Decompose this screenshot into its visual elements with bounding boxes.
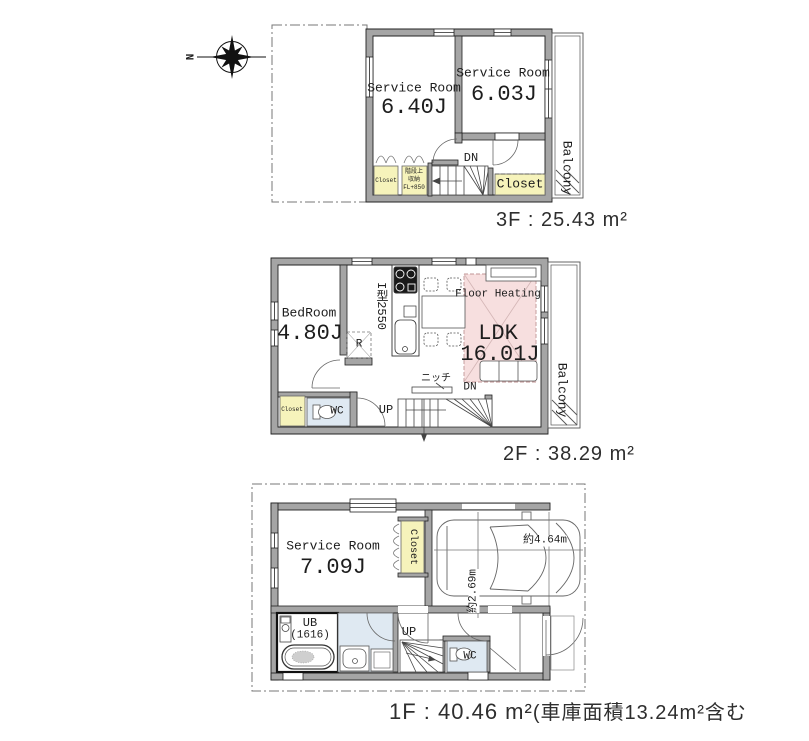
f1-area-main: 1F : 40.46 m²	[389, 699, 533, 724]
f3-service-room-b-size: 6.03J	[471, 84, 537, 106]
f2-floor-heating-label: Floor Heating	[455, 290, 541, 301]
f3-closet-a-label: Closet	[375, 178, 397, 184]
f1-wc-label: WC	[463, 652, 476, 663]
washroom	[338, 613, 393, 672]
entrance-porch	[551, 616, 574, 670]
floor3-closet-doors	[376, 156, 424, 163]
f2-area-label: 2F : 38.29 m²	[503, 444, 635, 464]
dining-table	[422, 296, 465, 328]
f3-service-room-b-name: Service Room	[456, 67, 550, 80]
compass-rose	[197, 35, 266, 79]
f1-garage-width-label: 約4.64m	[523, 536, 567, 547]
floor1-stairs	[400, 640, 443, 672]
f3-area-label: 3F : 25.43 m²	[496, 210, 628, 230]
f1-service-room-name: Service Room	[286, 540, 380, 553]
f2-ldk-size: 16.01J	[460, 344, 539, 366]
f2-closet-label: Closet	[281, 407, 303, 413]
floor2-stairs	[398, 399, 492, 442]
f1-area-label: 1F : 40.46 m²(車庫面積13.24m²含む	[389, 701, 747, 723]
f1-stairs-up-label: UP	[402, 626, 416, 638]
f2-kitchen-label: I型2550	[375, 282, 387, 330]
f3-service-room-a-name: Service Room	[367, 82, 461, 95]
tv-board	[486, 265, 541, 281]
f2-wc-label: WC	[330, 407, 343, 418]
f3-balcony-label: Balcony	[561, 141, 574, 196]
car-top-view	[437, 512, 580, 604]
f2-balcony-label: Balcony	[556, 363, 569, 418]
compass-north-label: N	[187, 54, 198, 61]
f2-niche-label: ニッチ	[421, 375, 451, 385]
f1-ub-name: UB	[303, 617, 317, 629]
f1-service-room-size: 7.09J	[300, 557, 366, 579]
kitchen-counter	[392, 265, 419, 356]
f2-fridge-label: R	[356, 340, 363, 351]
f2-bedroom-size: 4.80J	[277, 323, 343, 345]
f2-bedroom-name: BedRoom	[282, 307, 337, 320]
floor1-plan	[252, 484, 585, 691]
f1-closet-label: Closet	[407, 529, 417, 565]
f2-stairs-up-label: UP	[379, 404, 393, 416]
f2-stairs-dn-label: DN	[463, 383, 476, 394]
floorplan-page: N Service Room 6.40J Service Room 6.03J …	[0, 0, 809, 741]
f3-stair-storage-line2: 収納	[408, 177, 420, 183]
floor1-closet-doors	[394, 524, 400, 570]
floor3-stairs	[432, 166, 488, 195]
f3-closet-b-label: Closet	[497, 178, 544, 191]
floor3-property-line	[272, 25, 367, 202]
f3-stair-storage-line1: 階段上	[405, 169, 423, 175]
f1-area-note: (車庫面積13.24m²含む	[533, 702, 747, 724]
f3-service-room-a-size: 6.40J	[381, 97, 447, 119]
f3-stair-storage-line3: FL+850	[403, 185, 425, 191]
f1-ub-size: (1616)	[290, 631, 330, 642]
f1-garage-depth-label: 約2.69m	[469, 569, 480, 613]
dishwasher	[404, 306, 416, 317]
f3-stairs-dn-label: DN	[464, 152, 478, 164]
